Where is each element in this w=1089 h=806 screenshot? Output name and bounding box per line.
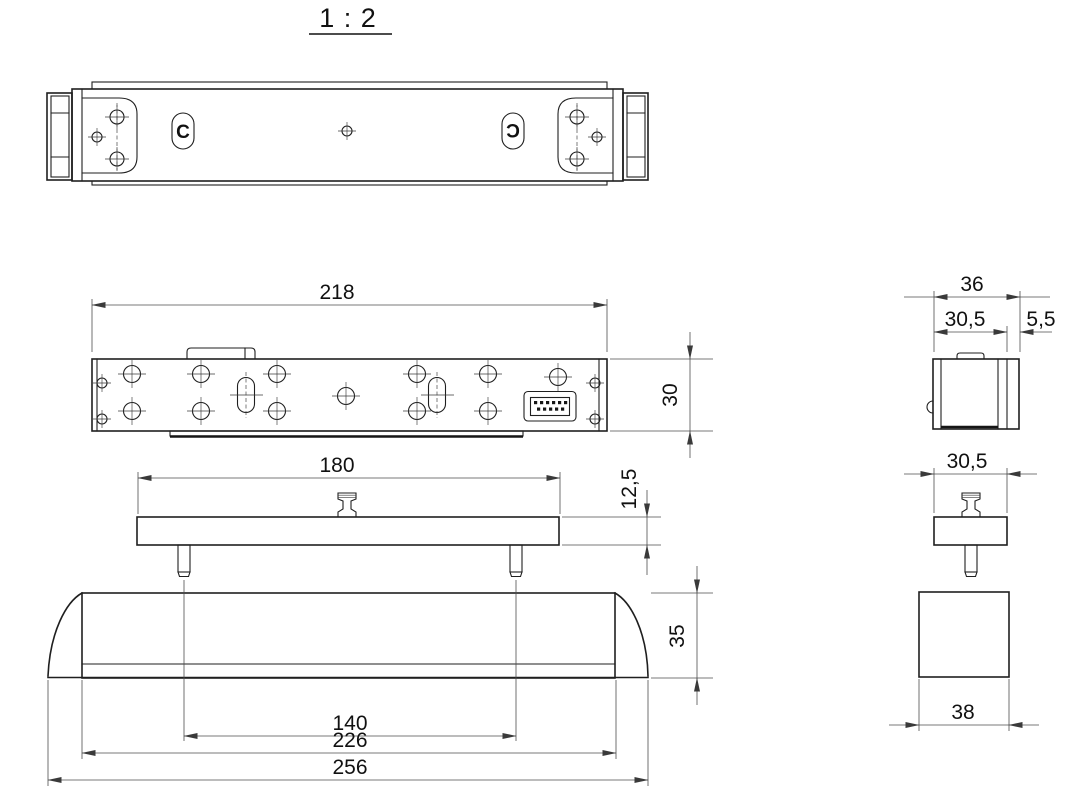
svg-text:256: 256 (332, 756, 367, 779)
marker-c-right: C (506, 119, 520, 140)
dim-housing-overall-width: 256 (48, 756, 648, 780)
side-plate-pin (965, 545, 977, 577)
front-view: 218 30 (92, 281, 713, 458)
housing-right-curve (615, 593, 648, 676)
svg-text:30: 30 (659, 383, 682, 406)
side-lock-bump (927, 401, 933, 413)
housing-view: 140 226 256 35 (48, 566, 713, 786)
plate-knob (338, 493, 356, 517)
svg-text:226: 226 (332, 729, 367, 752)
svg-text:180: 180 (319, 454, 354, 477)
svg-text:30,5: 30,5 (947, 450, 988, 473)
dim-plate-width: 180 (138, 454, 560, 514)
svg-text:30,5: 30,5 (945, 308, 986, 331)
plate-view: 180 12,5 (137, 454, 661, 577)
housing-left-curve (48, 593, 82, 676)
marker-c-left: C (176, 122, 190, 143)
dim-front-height: 30 (610, 332, 713, 458)
dim-housing-height: 35 (651, 566, 713, 705)
left-end-cap (47, 93, 72, 180)
svg-text:12,5: 12,5 (618, 469, 641, 510)
dim-lock-body-depth: 30,5 (934, 308, 1007, 352)
side-view-lock: 36 30,5 5,5 (904, 273, 1056, 429)
scale-label: 1 : 2 (309, 3, 392, 34)
side-view-housing: 38 (889, 592, 1039, 731)
svg-text:5,5: 5,5 (1026, 308, 1055, 331)
plate-pin-left (178, 545, 190, 577)
dim-housing-depth: 38 (889, 679, 1039, 731)
right-end-cap (623, 93, 648, 180)
svg-text:218: 218 (319, 281, 354, 304)
scale-text: 1 : 2 (319, 3, 377, 33)
technical-drawing-page: 1 : 2 C (0, 0, 1089, 806)
plate-pin-right (510, 545, 522, 577)
drawing-canvas: 1 : 2 C (0, 0, 1089, 806)
dim-lock-flange-depth: 5,5 (1020, 308, 1056, 332)
dim-plate-depth: 30,5 (904, 450, 1037, 513)
side-lock-tab (957, 353, 984, 359)
svg-text:38: 38 (951, 701, 974, 724)
dim-housing-body-width: 226 (82, 729, 616, 753)
side-view-plate: 30,5 (904, 450, 1037, 577)
dim-front-width: 218 (92, 281, 607, 352)
side-plate-knob (962, 493, 980, 517)
dim-plate-thickness: 12,5 (562, 469, 661, 575)
top-view: C C (47, 82, 648, 185)
svg-text:35: 35 (666, 624, 689, 647)
svg-text:36: 36 (960, 273, 983, 296)
